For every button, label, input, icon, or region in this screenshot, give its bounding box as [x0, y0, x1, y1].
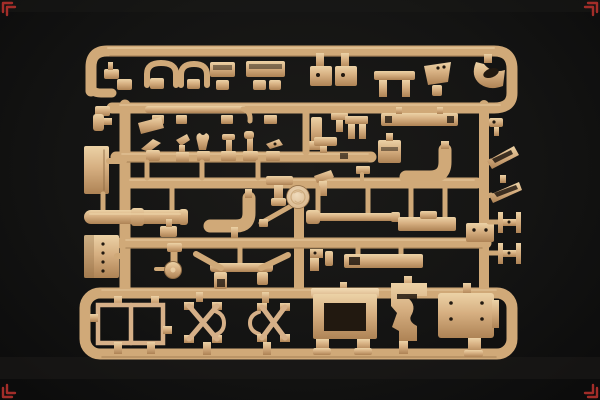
gate-pin: [262, 292, 269, 303]
tool-hole: [274, 143, 277, 146]
plate-hole: [449, 301, 453, 305]
plate-hole: [449, 317, 453, 321]
gate-pin: [263, 342, 271, 355]
gate-block: [187, 79, 200, 89]
panel-recess: [213, 65, 232, 70]
gate-pin: [114, 342, 122, 354]
part-tee-post: [271, 198, 286, 206]
rod-hook-end: [243, 109, 250, 121]
part-table-leg: [402, 80, 410, 97]
runner-slot: [340, 153, 348, 159]
stretcher-foot-notch: [217, 279, 225, 287]
wide-bar-bump: [420, 211, 437, 219]
block-notch: [381, 147, 398, 151]
hatch-plate-tab: [492, 300, 499, 328]
part-tilted-plate: [138, 117, 164, 134]
part-side-slab: [84, 146, 109, 194]
part-corner-bracket: [325, 251, 333, 266]
bracket-hole: [508, 252, 511, 255]
gate-pin: [203, 342, 211, 355]
part-foot-bracket: [310, 66, 332, 86]
bracket-hole: [316, 73, 320, 77]
part-bench-leg: [359, 124, 366, 139]
gate-pin: [399, 341, 408, 354]
part-tee-post: [274, 185, 283, 200]
stretcher-arm: [196, 254, 221, 268]
top-glow-band: [0, 0, 600, 12]
gate-pin: [231, 227, 238, 238]
gate-block: [253, 80, 266, 90]
plank-notch: [385, 116, 392, 123]
part-notched-block: [378, 140, 401, 163]
x-frame-side-rail: [215, 311, 224, 335]
panel-recess: [249, 64, 282, 69]
lattice-nub: [90, 314, 98, 322]
plate-hole: [484, 228, 487, 231]
gate-pin: [166, 219, 172, 227]
part-boot-bracket: [93, 114, 104, 131]
part-bench-leg: [348, 124, 355, 139]
part-tee: [336, 120, 343, 132]
window-foot-pad: [313, 348, 331, 355]
drawer-knob: [101, 242, 104, 245]
part-foot-bracket: [335, 66, 357, 86]
window-opening: [324, 303, 366, 331]
part-flat-fitting: [314, 137, 337, 146]
gate-pin: [108, 62, 113, 70]
bracket-hole: [314, 252, 317, 255]
plate-hole: [442, 65, 445, 68]
gate-block: [167, 243, 182, 252]
bracket-hole: [341, 73, 345, 77]
gate-pin: [437, 107, 443, 114]
gate-pin: [500, 175, 506, 183]
gate-pin: [245, 189, 252, 198]
x-frame-side-rail: [250, 312, 259, 334]
stretcher-foot: [257, 272, 268, 285]
part-corner-bracket: [310, 258, 319, 271]
part-j-pipe: [210, 198, 249, 226]
part-lever-stem: [179, 145, 185, 153]
gate-block: [150, 78, 164, 89]
part-table-top: [374, 71, 415, 80]
hatch-foot-pad: [464, 350, 483, 357]
gate-block: [197, 151, 210, 161]
gate-block: [176, 115, 187, 124]
sprue-scene: [0, 0, 600, 400]
part-periscope-stem: [226, 138, 232, 152]
stretcher-arm: [261, 255, 288, 268]
part-wide-bar: [398, 217, 456, 231]
part-long-plank: [381, 113, 458, 126]
corner-mark-bottom-left: [3, 385, 15, 397]
gate-pin: [386, 133, 393, 141]
sprue-photo: [0, 0, 600, 400]
mold-stamp-disc: [287, 186, 310, 209]
drawer-box-shade: [84, 235, 94, 278]
z-bracket-slot: [397, 294, 417, 299]
bracket-hole: [508, 221, 511, 224]
part-foot-bracket: [316, 53, 324, 68]
gate-pin: [320, 146, 327, 153]
runner-left-stub: [91, 85, 112, 93]
part-h-bracket: [516, 212, 521, 233]
drawer-knob: [101, 269, 104, 272]
drawer-knob: [101, 260, 104, 263]
gate-pin: [441, 141, 449, 149]
barrel-collar: [131, 208, 144, 226]
gate-block: [176, 152, 189, 162]
gate-block: [146, 150, 160, 161]
part-periscope-cap: [222, 134, 235, 140]
part-h-bracket: [498, 243, 503, 264]
part-corner-bracket: [310, 249, 323, 258]
plank-slot: [349, 257, 360, 265]
part-fork: [196, 133, 209, 150]
part-hatch-plate: [438, 293, 494, 338]
gate-block: [117, 79, 132, 90]
part-elbow-pipe: [406, 150, 445, 177]
corner-mark-bottom-right: [585, 385, 597, 397]
axle-collar: [306, 210, 320, 224]
gate-block: [266, 151, 280, 161]
gate-block: [269, 80, 281, 90]
plate-hole: [472, 228, 475, 231]
barrel-cap: [179, 209, 188, 225]
gate-block: [264, 115, 277, 124]
hammer-hole: [492, 120, 495, 123]
gate-pin: [463, 283, 471, 294]
part-tee-post: [266, 176, 293, 185]
part-h-bracket: [498, 212, 503, 233]
plank-notch: [447, 116, 454, 123]
part-boot-bracket: [104, 118, 112, 125]
gate-block: [221, 115, 233, 124]
part-h-bracket: [516, 243, 521, 264]
gate-pin: [396, 107, 402, 114]
part-small-bracket: [104, 69, 119, 79]
gate-pin: [484, 54, 492, 63]
gate-block: [259, 219, 268, 227]
part-table-leg: [379, 80, 387, 97]
part-hammer-head: [489, 118, 503, 127]
gate-pin: [147, 342, 155, 354]
scene-root: [0, 0, 600, 397]
part-foot-bracket: [341, 53, 349, 68]
part-lever: [176, 134, 190, 146]
floor-light-band: [0, 357, 600, 379]
window-foot-pad: [354, 348, 372, 355]
part-thin-rod: [145, 106, 246, 113]
part-bench-top: [345, 116, 368, 124]
drawer-knob: [101, 251, 104, 254]
part-knob: [244, 131, 254, 139]
lattice-nub: [163, 326, 172, 334]
part-hammer-handle: [494, 127, 499, 136]
gate-block: [432, 85, 442, 96]
part-z-bracket: [391, 283, 427, 341]
plate-hole: [480, 317, 484, 321]
plate-hole: [436, 66, 439, 69]
part-plate-trapezoid: [424, 62, 451, 85]
plate-hole: [480, 301, 484, 305]
gate-block: [243, 151, 258, 161]
part-dotted-plate: [466, 223, 494, 242]
gate-pin: [196, 292, 203, 302]
gate-block: [221, 151, 236, 161]
gate-block: [216, 80, 229, 90]
gate-block: [160, 226, 177, 237]
wheel-hub: [171, 268, 176, 273]
